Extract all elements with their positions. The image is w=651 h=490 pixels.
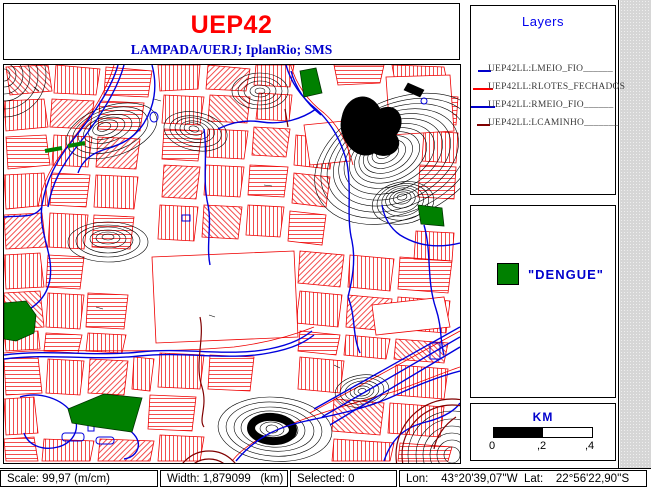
layer-item-rlotes-fechados[interactable]: UEP42LL:RLOTES_FECHADOS xyxy=(471,82,615,96)
layers-panel: Layers UEP42LL:LMEIO_FIO______ UEP42LL:R… xyxy=(470,5,616,195)
panel-edge-divider xyxy=(618,0,619,468)
layer-item-rmeio-fio[interactable]: UEP42LL:RMEIO_FIO______ xyxy=(471,100,615,114)
map-viewport[interactable] xyxy=(3,64,461,464)
layer-item-label: UEP42LL:RMEIO_FIO______ xyxy=(488,100,613,110)
scalebar-tick: 0 xyxy=(489,440,495,452)
statusbar-scale: Scale: 99,97 (m/cm) xyxy=(0,470,158,487)
scalebar-tick: ,2 xyxy=(537,440,546,452)
map-title: UEP42 xyxy=(4,11,459,40)
layer-item-lmeio-fio[interactable]: UEP42LL:LMEIO_FIO______ xyxy=(471,64,615,78)
layer-item-label: UEP42LL:LCAMINHO_______ xyxy=(488,118,619,128)
dengue-swatch xyxy=(497,263,519,285)
statusbar-divider xyxy=(0,468,651,469)
layer-item-label: UEP42LL:LMEIO_FIO______ xyxy=(488,64,613,74)
layer-item-lcaminho[interactable]: UEP42LL:LCAMINHO_______ xyxy=(471,118,615,132)
scalebar-filled-segment xyxy=(494,428,543,437)
dengue-label: "DENGUE" xyxy=(528,267,604,282)
statusbar-selected: Selected: 0 xyxy=(290,470,397,487)
map-canvas[interactable] xyxy=(4,65,460,463)
legend-panel: "DENGUE" xyxy=(470,205,616,398)
statusbar: Scale: 99,97 (m/cm) Width: 1,879099 (km)… xyxy=(0,470,651,489)
map-subtitle: LAMPADA/UERJ; IplanRio; SMS xyxy=(4,42,459,58)
window-background-strip xyxy=(620,0,651,468)
statusbar-lon-lat: Lon: 43°20'39,07''W Lat: 22°56'22,90''S xyxy=(399,470,647,487)
map-title-box: UEP42 LAMPADA/UERJ; IplanRio; SMS xyxy=(3,3,460,60)
scalebar-bar xyxy=(493,427,593,438)
layers-panel-title: Layers xyxy=(471,14,615,29)
scalebar-panel: KM 0 ,2 ,4 xyxy=(470,403,616,461)
layer-item-label: UEP42LL:RLOTES_FECHADOS xyxy=(488,82,625,92)
gis-window: UEP42 LAMPADA/UERJ; IplanRio; SMS xyxy=(0,0,651,490)
statusbar-width: Width: 1,879099 (km) xyxy=(160,470,288,487)
scalebar-tick: ,4 xyxy=(585,440,594,452)
scalebar-unit-label: KM xyxy=(471,410,615,424)
